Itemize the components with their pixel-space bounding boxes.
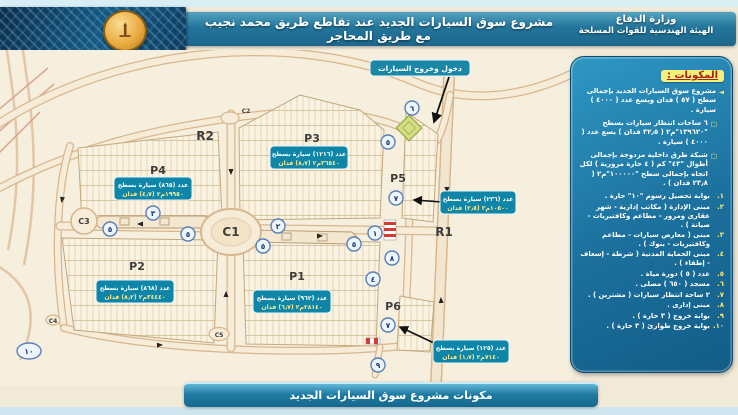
label-p2: P2 xyxy=(129,260,145,273)
svg-text:٩: ٩ xyxy=(376,361,381,370)
entrance-callout-text: دخول وخروج السيارات xyxy=(378,64,462,73)
marker-5b: ٥ xyxy=(347,237,361,251)
ministry-line2: الهيئة الهندسية للقوات المسلحة xyxy=(562,26,730,36)
engineering-authority-emblem-icon xyxy=(103,10,147,52)
legend-item: ٢.مبنى الإدارة ( مكاتب إدارية - شهر عقار… xyxy=(579,203,724,230)
svg-text:٥: ٥ xyxy=(108,225,113,234)
marker-4: ٤ xyxy=(366,272,380,286)
label-p4: P4 xyxy=(150,164,166,177)
legend-bullet: □ ٦ ساحات انتظار سيارات بسطح "١٣٩٦٢٠"م٢ … xyxy=(579,119,724,147)
callout-p3-line1: عدد (١٢١٦) سيارة بسطح xyxy=(272,151,346,158)
bottom-strip xyxy=(0,407,738,415)
legend-item-text: ٢ ساحة انتظار سيارات ( مشترين ) . xyxy=(588,291,710,300)
parking-area-p6 xyxy=(397,296,434,352)
header-photo xyxy=(0,7,186,51)
svg-text:٢: ٢ xyxy=(276,222,281,231)
callout-p2-line1: عدد (٨٦٨) سيارة بسطح xyxy=(100,285,171,292)
legend-item: ٧.٢ ساحة انتظار سيارات ( مشترين ) . xyxy=(579,291,724,300)
legend-item: ٦.مسجد ( ٦٥٠ ) مصلى . xyxy=(579,280,724,289)
ministry-block: وزارة الدفاع الهيئة الهندسية للقوات المس… xyxy=(562,14,730,36)
exit-gate-hatch-icon xyxy=(366,338,380,344)
legend-item: ١.بوابة تحصيل رسوم "١٠" حارة . xyxy=(579,192,724,201)
callout-p2-line2: ٣٤٤٤٠م٢ (٨٫٢) فدان xyxy=(104,294,165,301)
legend-bullet: □ شبكة طرق داخلية مزدوجة بإجمالى أطوال "… xyxy=(579,151,724,188)
legend-item-text: بوابة خروج ( ٣ حارة ) . xyxy=(632,312,710,321)
label-c3: C3 xyxy=(78,217,89,226)
label-p5: P5 xyxy=(390,172,406,185)
callout-p4: عدد (٨٦٥) سيارة بسطح ١٩٩٥٠م٢ (٤٫٧) فدان xyxy=(114,177,192,200)
callout-p4-line1: عدد (٨٦٥) سيارة بسطح xyxy=(118,182,189,189)
svg-text:٥: ٥ xyxy=(186,230,191,239)
legend-item-text: مبنى إدارى . xyxy=(667,301,710,310)
site-plan-map: R2 R1 P3 P4 P5 P2 P1 P6 C1 C3 C2 C4 C5 ع… xyxy=(0,50,572,386)
arrow-bullet-icon: ◄ xyxy=(719,88,724,115)
callout-p1-line1: عدد (٩٦٢) سيارة بسطح xyxy=(257,295,328,302)
legend-item: ١٠.بوابة خروج طوارئ ( ٣ حارة ) . xyxy=(579,322,724,331)
marker-6: ٦ xyxy=(405,101,419,115)
legend-item-text: مبنى ( معارض سيارات - مطاعم وكافتيريات -… xyxy=(579,231,710,249)
label-r2: R2 xyxy=(196,129,214,143)
svg-text:٦: ٦ xyxy=(410,104,415,113)
label-c4: C4 xyxy=(49,318,58,325)
marker-5c: ٥ xyxy=(103,222,117,236)
marker-2: ٢ xyxy=(271,219,285,233)
legend-bullet-text: مشروع سوق السيارات الجديد بإجمالى سطح ( … xyxy=(579,87,716,115)
legend-item: ٥.عدد ( ٥ ) دورة مياة . xyxy=(579,270,724,279)
callout-p6-line2: ٧١٤٠م٢ (١٫٧) فدان xyxy=(442,354,499,361)
marker-5e: ٥ xyxy=(256,239,270,253)
marker-5d: ٥ xyxy=(181,227,195,241)
callout-p3: عدد (١٢١٦) سيارة بسطح ٣٦٥٤٠م٢ (٨٫٧) فدان xyxy=(270,146,348,169)
legend-item-text: مبنى الحماية المدنية ( شرطة - إسعاف - إط… xyxy=(579,250,710,268)
marker-5a: ٥ xyxy=(381,135,395,149)
label-p3: P3 xyxy=(304,132,320,145)
toll-gate-hatch-icon xyxy=(384,220,396,240)
square-bullet-icon: □ xyxy=(711,152,717,188)
label-p6: P6 xyxy=(385,300,401,313)
svg-text:٧: ٧ xyxy=(394,194,399,203)
slide: مشروع سوق السيارات الجديد عند تقاطع طريق… xyxy=(0,0,738,415)
svg-text:١٠: ١٠ xyxy=(24,347,33,356)
marker-7b: ٧ xyxy=(381,318,395,332)
callout-p1-line2: ٢٨١٤٠م٢ (٦٫٧) فدان xyxy=(261,304,322,311)
callout-p5-line2: ١٠٥٠٠م٢ (٢٫٥) فدان xyxy=(447,205,508,212)
callout-p6-line1: عدد (١٢٥) سيارة بسطح xyxy=(436,345,507,352)
site-plan-svg: R2 R1 P3 P4 P5 P2 P1 P6 C1 C3 C2 C4 C5 ع… xyxy=(0,50,572,386)
marker-7a: ٧ xyxy=(389,191,403,205)
legend-item-text: مسجد ( ٦٥٠ ) مصلى . xyxy=(635,280,710,289)
legend-bullet-text: شبكة طرق داخلية مزدوجة بإجمالى أطوال "٤٣… xyxy=(579,151,708,188)
ministry-line1: وزارة الدفاع xyxy=(562,14,730,25)
label-r1: R1 xyxy=(435,225,453,239)
legend-item-text: عدد ( ٥ ) دورة مياة . xyxy=(641,270,710,279)
legend-item: ٤.مبنى الحماية المدنية ( شرطة - إسعاف - … xyxy=(579,250,724,268)
label-c1: C1 xyxy=(222,225,239,239)
legend-bullet: ◄ مشروع سوق السيارات الجديد بإجمالى سطح … xyxy=(579,87,724,115)
callout-p3-line2: ٣٦٥٤٠م٢ (٨٫٧) فدان xyxy=(278,160,339,167)
marker-10: ١٠ xyxy=(17,343,41,359)
marker-9: ٩ xyxy=(371,358,385,372)
callout-p4-line2: ١٩٩٥٠م٢ (٤٫٧) فدان xyxy=(122,191,183,198)
marker-3: ٣ xyxy=(146,206,160,220)
svg-text:٤: ٤ xyxy=(371,275,376,284)
label-c5: C5 xyxy=(215,332,224,339)
svg-text:٥: ٥ xyxy=(261,242,266,251)
svg-text:٥: ٥ xyxy=(352,240,357,249)
legend-item: ٨.مبنى إدارى . xyxy=(579,301,724,310)
svg-text:٧: ٧ xyxy=(386,321,391,330)
label-c2: C2 xyxy=(242,108,251,115)
legend-item-text: مبنى الإدارة ( مكاتب إدارية - شهر عقارى … xyxy=(579,203,710,230)
callout-p2: عدد (٨٦٨) سيارة بسطح ٣٤٤٤٠م٢ (٨٫٢) فدان xyxy=(96,280,174,303)
callout-p5-line1: عدد (٢٣٦) سيارة بسطح xyxy=(443,196,514,203)
square-bullet-icon: □ xyxy=(711,120,717,147)
legend-item: ٣.مبنى ( معارض سيارات - مطاعم وكافتيريات… xyxy=(579,231,724,249)
marker-1: ١ xyxy=(368,226,382,240)
components-legend-panel: المكونات : ◄ مشروع سوق السيارات الجديد ب… xyxy=(570,56,733,373)
footer-title: مكونات مشروع سوق السيارات الجديد xyxy=(289,389,492,402)
label-p1: P1 xyxy=(289,270,305,283)
svg-text:٣: ٣ xyxy=(151,209,156,218)
header-banner: مشروع سوق السيارات الجديد عند تقاطع طريق… xyxy=(0,7,736,51)
legend-item-text: بوابة خروج طوارئ ( ٣ حارة ) . xyxy=(606,322,710,331)
svg-text:٨: ٨ xyxy=(390,254,395,263)
svg-text:١: ١ xyxy=(373,229,378,238)
legend-item-text: بوابة تحصيل رسوم "١٠" حارة . xyxy=(605,192,710,201)
legend-title: المكونات : xyxy=(661,70,724,82)
callout-p1: عدد (٩٦٢) سيارة بسطح ٢٨١٤٠م٢ (٦٫٧) فدان xyxy=(253,290,331,313)
legend-bullet-text: ٦ ساحات انتظار سيارات بسطح "١٣٩٦٢٠"م٢ ( … xyxy=(579,119,708,147)
legend-item: ٩.بوابة خروج ( ٣ حارة ) . xyxy=(579,312,724,321)
svg-text:٥: ٥ xyxy=(386,138,391,147)
footer-banner: مكونات مشروع سوق السيارات الجديد xyxy=(184,382,598,407)
top-strip xyxy=(0,0,738,7)
roundabout-c2 xyxy=(221,112,239,124)
marker-8: ٨ xyxy=(385,251,399,265)
obelisk-icon xyxy=(114,20,136,42)
slide-title: مشروع سوق السيارات الجديد عند تقاطع طريق… xyxy=(200,12,558,46)
